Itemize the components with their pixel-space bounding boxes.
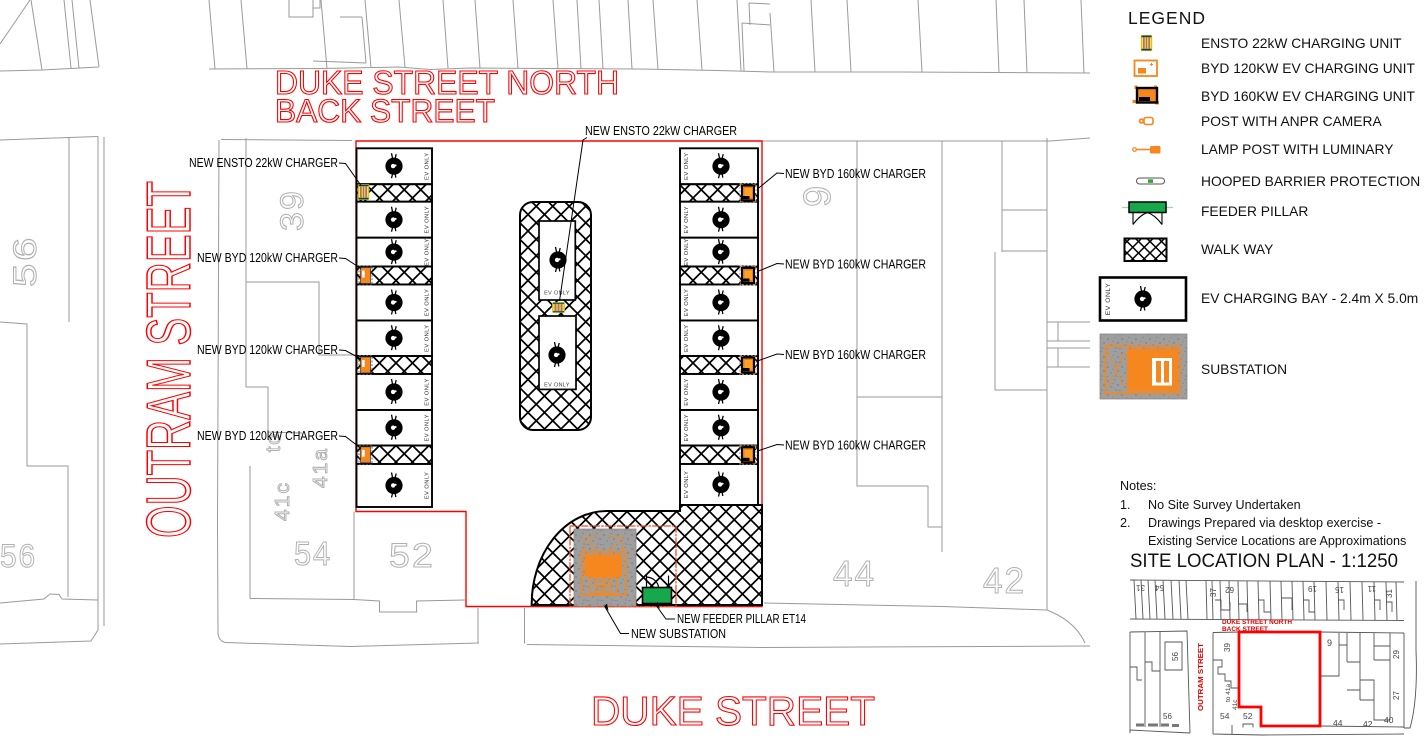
svg-text:2.: 2. <box>1120 516 1131 530</box>
svg-text:EV ONLY: EV ONLY <box>544 291 570 297</box>
svg-text:EV ONLY: EV ONLY <box>425 414 431 442</box>
svg-text:SUBSTATION: SUBSTATION <box>1201 362 1287 377</box>
svg-text:NEW BYD 160kW CHARGER: NEW BYD 160kW CHARGER <box>785 166 926 181</box>
svg-text:54: 54 <box>1155 583 1164 592</box>
svg-text:Notes:: Notes: <box>1120 479 1156 493</box>
svg-text:EV ONLY: EV ONLY <box>425 238 431 266</box>
svg-text:DUKE STREET: DUKE STREET <box>591 688 875 734</box>
svg-text:27: 27 <box>1392 691 1401 700</box>
svg-text:EV ONLY: EV ONLY <box>684 471 690 499</box>
svg-text:29: 29 <box>1392 650 1401 659</box>
svg-text:31: 31 <box>1385 589 1394 598</box>
svg-text:OUTRAM STREET: OUTRAM STREET <box>1196 642 1205 711</box>
svg-text:52: 52 <box>1243 711 1253 721</box>
svg-text:BYD 120KW EV CHARGING UNIT: BYD 120KW EV CHARGING UNIT <box>1201 61 1415 76</box>
svg-text:NEW BYD 120kW CHARGER: NEW BYD 120kW CHARGER <box>197 250 338 265</box>
svg-text:NEW FEEDER PILLAR ET14: NEW FEEDER PILLAR ET14 <box>677 611 806 626</box>
svg-text:41a: 41a <box>310 447 332 488</box>
svg-text:EV ONLY: EV ONLY <box>544 383 570 389</box>
svg-text:NEW BYD 160kW CHARGER: NEW BYD 160kW CHARGER <box>785 438 926 453</box>
svg-text:OUTRAM STREET: OUTRAM STREET <box>134 181 203 538</box>
svg-text:39: 39 <box>1223 643 1232 652</box>
svg-text:WALK WAY: WALK WAY <box>1201 242 1273 257</box>
svg-text:POST WITH ANPR CAMERA: POST WITH ANPR CAMERA <box>1201 114 1382 129</box>
svg-text:52: 52 <box>389 537 435 575</box>
svg-text:NEW SUBSTATION: NEW SUBSTATION <box>631 626 726 641</box>
svg-text:EV ONLY: EV ONLY <box>684 152 690 180</box>
svg-text:No Site Survey Undertaken: No Site Survey Undertaken <box>1148 498 1301 512</box>
svg-text:NEW BYD 160kW CHARGER: NEW BYD 160kW CHARGER <box>785 347 926 362</box>
svg-text:Drawings Prepared via desktop: Drawings Prepared via desktop exercise - <box>1148 516 1381 530</box>
svg-text:BACK STREET: BACK STREET <box>275 93 495 129</box>
svg-text:15: 15 <box>1335 585 1344 594</box>
svg-text:37: 37 <box>1209 588 1218 597</box>
svg-text:EV ONLY: EV ONLY <box>684 206 690 234</box>
svg-text:SITE LOCATION PLAN - 1:1250: SITE LOCATION PLAN - 1:1250 <box>1130 550 1398 572</box>
svg-text:EV ONLY: EV ONLY <box>1105 283 1112 315</box>
svg-text:44: 44 <box>833 553 876 594</box>
svg-text:44: 44 <box>1333 718 1343 728</box>
svg-text:54: 54 <box>1220 711 1230 721</box>
svg-text:19: 19 <box>1308 584 1317 593</box>
svg-text:NEW ENSTO 22kW CHARGER: NEW ENSTO 22kW CHARGER <box>189 155 338 170</box>
svg-text:NEW BYD 160kW CHARGER: NEW BYD 160kW CHARGER <box>785 257 926 272</box>
svg-text:LAMP POST WITH LUMINARY: LAMP POST WITH LUMINARY <box>1201 142 1393 157</box>
svg-text:1.: 1. <box>1120 498 1131 512</box>
svg-text:FEEDER PILLAR: FEEDER PILLAR <box>1201 204 1308 219</box>
svg-text:DUKE STREET NORTH: DUKE STREET NORTH <box>1222 619 1293 626</box>
svg-text:56: 56 <box>1171 652 1180 661</box>
svg-text:LEGEND: LEGEND <box>1128 8 1206 28</box>
svg-text:ENSTO 22kW CHARGING UNIT: ENSTO 22kW CHARGING UNIT <box>1201 36 1402 51</box>
svg-text:EV ONLY: EV ONLY <box>684 238 690 266</box>
svg-text:HOOPED BARRIER PROTECTION: HOOPED BARRIER PROTECTION <box>1201 174 1420 189</box>
svg-text:41c: 41c <box>272 481 294 521</box>
svg-text:EV ONLY: EV ONLY <box>425 289 431 317</box>
svg-text:EV ONLY: EV ONLY <box>684 414 690 442</box>
svg-text:NEW BYD 120kW CHARGER: NEW BYD 120kW CHARGER <box>197 342 338 357</box>
svg-text:EV ONLY: EV ONLY <box>425 152 431 180</box>
svg-text:9: 9 <box>797 184 839 207</box>
svg-text:Existing Service Locations are: Existing Service Locations are Approxima… <box>1148 534 1406 548</box>
svg-text:EV CHARGING BAY - 2.4m X 5.0m: EV CHARGING BAY - 2.4m X 5.0m <box>1201 291 1418 306</box>
svg-text:39: 39 <box>274 189 310 231</box>
svg-text:42: 42 <box>983 560 1026 601</box>
svg-text:9: 9 <box>1327 638 1332 648</box>
svg-text:EV ONLY: EV ONLY <box>425 324 431 352</box>
svg-text:11: 11 <box>1367 584 1376 593</box>
svg-text:EV ONLY: EV ONLY <box>425 472 431 500</box>
svg-text:62: 62 <box>1225 585 1234 594</box>
svg-text:42: 42 <box>1363 719 1373 729</box>
svg-text:BYD 160KW EV CHARGING UNIT: BYD 160KW EV CHARGING UNIT <box>1201 89 1415 104</box>
svg-text:54: 54 <box>294 535 332 572</box>
svg-text:56: 56 <box>7 235 43 287</box>
svg-text:EV ONLY: EV ONLY <box>684 324 690 352</box>
svg-text:56: 56 <box>1163 712 1172 721</box>
svg-text:EV ONLY: EV ONLY <box>684 289 690 317</box>
svg-text:EV ONLY: EV ONLY <box>684 378 690 406</box>
svg-text:to 41a: to 41a <box>1225 684 1232 702</box>
svg-text:31: 31 <box>1136 583 1145 592</box>
svg-text:EV ONLY: EV ONLY <box>425 378 431 406</box>
svg-text:56: 56 <box>0 538 37 574</box>
svg-text:NEW BYD 120kW CHARGER: NEW BYD 120kW CHARGER <box>197 428 338 443</box>
svg-text:NEW ENSTO 22kW CHARGER: NEW ENSTO 22kW CHARGER <box>585 123 737 138</box>
svg-text:EV ONLY: EV ONLY <box>425 206 431 234</box>
svg-text:40: 40 <box>1384 715 1394 725</box>
